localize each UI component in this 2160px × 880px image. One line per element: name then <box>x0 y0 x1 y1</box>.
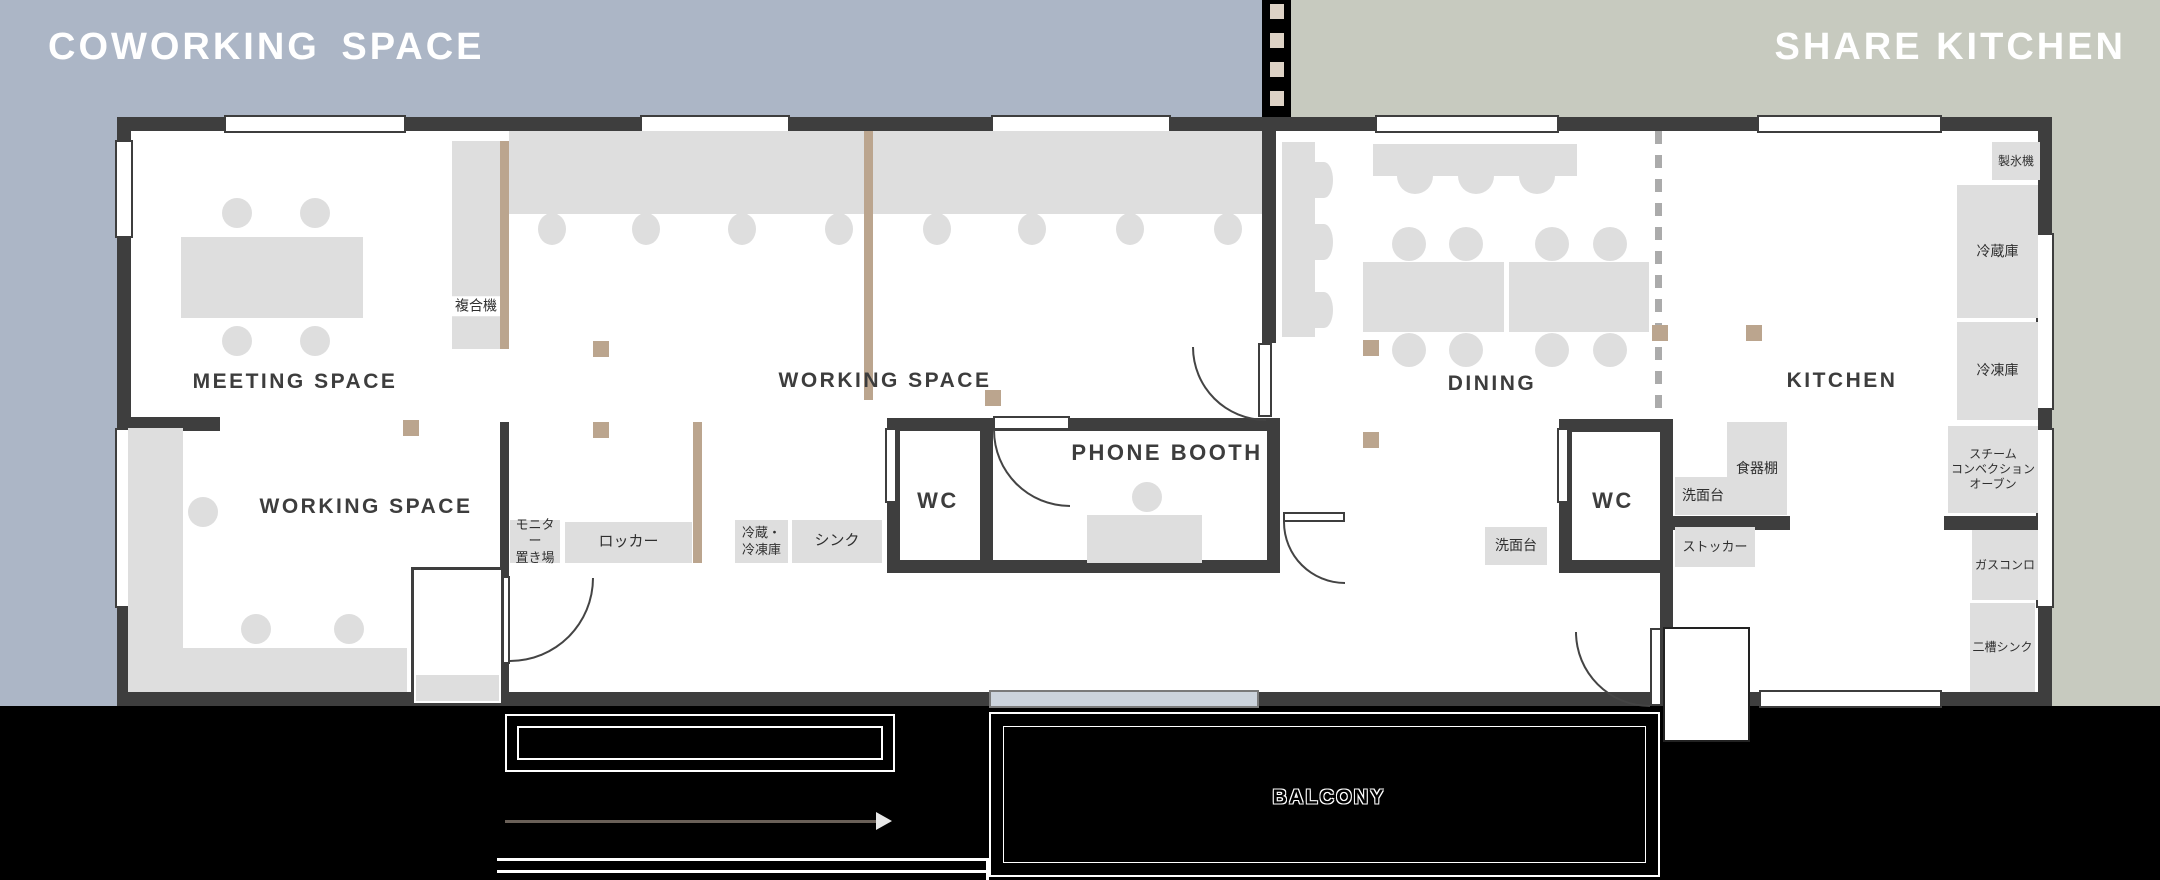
wc-left-door <box>885 428 897 503</box>
share-kitchen-zone-title: SHARE KITCHEN <box>1775 26 2126 69</box>
balcony-landing-step <box>1663 627 1750 742</box>
fridge-freezer-label: 冷蔵・ 冷凍庫 <box>742 525 781 558</box>
room-label-working-space-lower: WORKING SPACE <box>260 495 473 519</box>
wall-phonebooth-top <box>887 418 1280 431</box>
entry-direction-arrow-icon <box>876 812 892 830</box>
washstand-right: 洗面台 <box>1675 477 1731 515</box>
wall-kitchen-divider-right <box>1944 516 2038 530</box>
pillar-marker <box>1652 325 1668 341</box>
pillar-marker <box>1363 432 1379 448</box>
kitchen-dining-dashed-divider <box>1655 131 1662 417</box>
pillar-marker <box>1363 340 1379 356</box>
locker-partition <box>693 422 702 563</box>
chair <box>1535 333 1569 367</box>
pillar-marker <box>403 420 419 436</box>
balcony-glass-door <box>989 690 1259 708</box>
washstand-left-label: 洗面台 <box>1495 537 1537 555</box>
washstand-left: 洗面台 <box>1485 527 1547 565</box>
window <box>1375 115 1559 133</box>
ice-maker: 製氷機 <box>1992 142 2040 180</box>
locker: ロッカー <box>565 522 692 563</box>
stocker-label: ストッカー <box>1682 539 1747 555</box>
entry-vestibule-floor <box>416 675 499 701</box>
entry-direction-line <box>505 820 877 823</box>
entry-path-line <box>986 858 989 880</box>
chair <box>188 497 218 527</box>
refrigerator: 冷蔵庫 <box>1957 185 2038 318</box>
phonebooth-door-leaf <box>993 416 1070 430</box>
chair <box>300 198 330 228</box>
room-label-dining: DINING <box>1448 372 1537 396</box>
stool <box>1315 162 1333 198</box>
copier-counter <box>452 141 500 349</box>
phonebooth-desk <box>1087 515 1202 563</box>
chair <box>538 213 566 245</box>
window <box>2036 233 2054 410</box>
chair <box>222 198 252 228</box>
room-label-wc-right: WC <box>1592 488 1634 514</box>
pillar-marker <box>1746 325 1762 341</box>
wall-wc2-top <box>1559 419 1673 432</box>
zone-divider-dashed-strip <box>1262 0 1291 131</box>
wall-wc-phonebooth-divider <box>980 418 993 573</box>
corridor-door-leaf <box>1283 512 1345 522</box>
copier-counter-edge <box>500 141 509 349</box>
chair <box>1392 333 1426 367</box>
freezer: 冷凍庫 <box>1957 322 2038 420</box>
gas-stove-label: ガスコンロ <box>1975 558 2035 573</box>
pillar-marker <box>593 341 609 357</box>
room-label-meeting-space: MEETING SPACE <box>193 370 398 394</box>
phonebooth-chair <box>1132 482 1162 512</box>
chair <box>728 213 756 245</box>
stocker: ストッカー <box>1675 527 1755 567</box>
stool <box>1315 292 1333 328</box>
wall-phonebooth-right <box>1267 418 1280 573</box>
entry-path-line <box>497 858 989 861</box>
double-sink-label: 二槽シンク <box>1972 640 2032 655</box>
dining-stand-counter <box>1282 142 1315 337</box>
pillar-marker <box>593 422 609 438</box>
sink-counter: シンク <box>792 520 882 563</box>
window <box>1757 115 1942 133</box>
chair <box>632 213 660 245</box>
working-counter-bottom <box>128 648 407 692</box>
locker-label: ロッカー <box>598 533 658 552</box>
window <box>224 115 406 133</box>
wall-right <box>2038 117 2052 706</box>
double-sink: 二槽シンク <box>1970 603 2035 692</box>
monitor-storage: モニター 置き場 <box>510 520 560 563</box>
chair <box>1449 333 1483 367</box>
dining-table <box>1509 262 1649 332</box>
chair <box>1449 227 1483 261</box>
chair <box>334 614 364 644</box>
fridge-freezer: 冷蔵・ 冷凍庫 <box>735 520 788 563</box>
room-label-wc-left: WC <box>917 488 959 514</box>
chair <box>222 326 252 356</box>
monitor-storage-label: モニター 置き場 <box>510 517 560 566</box>
entry-path-inner-outline <box>517 726 883 760</box>
room-label-balcony: BALCONY <box>1273 787 1386 810</box>
chair <box>1018 213 1046 245</box>
room-label-kitchen: KITCHEN <box>1787 369 1898 393</box>
copier-label: 複合機 <box>452 296 500 316</box>
working-desk-counter <box>509 131 1262 214</box>
balcony-door-leaf <box>1650 628 1662 706</box>
window <box>2036 428 2054 608</box>
meeting-table <box>181 237 363 318</box>
room-label-phone-booth: PHONE BOOTH <box>1071 440 1262 466</box>
dining-table <box>1363 262 1504 332</box>
wall-wc2-bottom <box>1559 560 1673 573</box>
wall-dining-left <box>1262 131 1276 343</box>
cupboard-label: 食器棚 <box>1736 460 1778 478</box>
chair <box>300 326 330 356</box>
chair <box>1392 227 1426 261</box>
chair <box>1593 333 1627 367</box>
chair <box>825 213 853 245</box>
chair <box>1214 213 1242 245</box>
freezer-label: 冷凍庫 <box>1977 362 2019 380</box>
refrigerator-label: 冷蔵庫 <box>1977 243 2019 261</box>
wall-phonebooth-bottom <box>887 560 1280 573</box>
window <box>115 140 133 238</box>
wc-right-door <box>1557 428 1569 503</box>
steam-oven-label: スチーム コンベクション オーブン <box>1951 447 2035 492</box>
gas-stove: ガスコンロ <box>1972 530 2038 600</box>
stool <box>1315 224 1333 260</box>
sink-label: シンク <box>814 532 859 551</box>
dining-high-table <box>1373 144 1577 176</box>
chair <box>1535 227 1569 261</box>
desk-partition <box>864 131 873 400</box>
ice-maker-label: 製氷機 <box>1998 154 2034 169</box>
chair <box>1116 213 1144 245</box>
chair <box>1593 227 1627 261</box>
room-label-working-space-upper: WORKING SPACE <box>779 369 992 393</box>
window <box>1759 690 1942 708</box>
entry-path-line <box>497 870 989 873</box>
chair <box>241 614 271 644</box>
cupboard: 食器棚 <box>1727 422 1787 515</box>
coworking-zone-title: COWORKING SPACE <box>48 26 485 69</box>
floor-plan-canvas: COWORKING SPACE SHARE KITCHEN <box>0 0 2160 880</box>
washstand-right-label: 洗面台 <box>1682 487 1724 505</box>
chair <box>923 213 951 245</box>
steam-convection-oven: スチーム コンベクション オーブン <box>1948 426 2038 513</box>
